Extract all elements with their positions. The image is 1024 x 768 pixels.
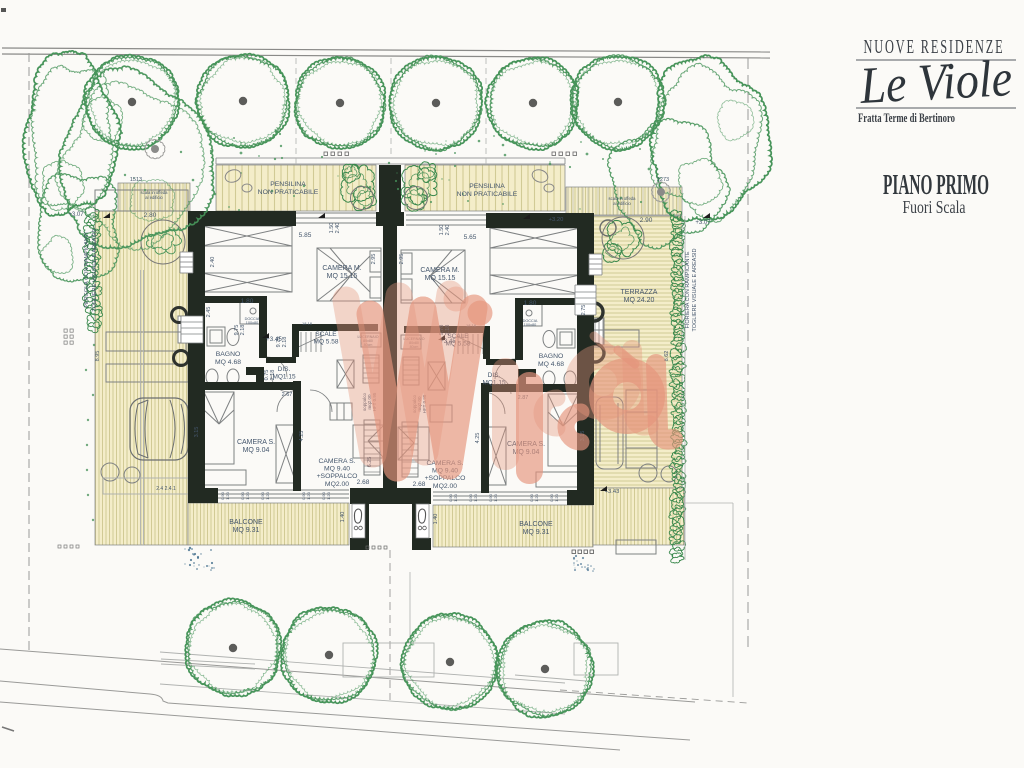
svg-text:4.25: 4.25 [475,433,481,444]
svg-text:2.67: 2.67 [282,392,293,398]
svg-text:2.4 2.4.1: 2.4 2.4.1 [156,486,176,492]
svg-text:MQ 5.58: MQ 5.58 [314,339,339,346]
svg-text:1273: 1273 [657,177,669,183]
svg-text:2.18: 2.18 [282,337,288,348]
svg-text:al edificio: al edificio [145,195,163,200]
svg-text:BALCONE: BALCONE [519,521,553,528]
svg-text:1.20: 1.20 [493,493,498,502]
svg-text:MQ2.00: MQ2.00 [325,481,349,488]
svg-text:FIORIERA CON RAMPICANTE: FIORIERA CON RAMPICANTE [685,251,691,328]
svg-text:1.20: 1.20 [554,493,559,502]
svg-text:MQ 9.04: MQ 9.04 [243,447,270,454]
svg-text:1.20: 1.20 [326,491,331,500]
svg-text:4.25: 4.25 [299,431,305,442]
svg-text:18 18: 18 18 [302,321,313,326]
svg-text:TOGLIERE VISUALE E AREASID: TOGLIERE VISUALE E AREASID [92,228,98,311]
svg-text:+3.07: +3.07 [695,220,711,226]
svg-text:2.95: 2.95 [371,254,377,265]
svg-text:+SOPPALCO: +SOPPALCO [317,473,358,480]
svg-text:BAGNO: BAGNO [216,351,241,358]
svg-text:1513: 1513 [130,177,142,183]
svg-text:1.20: 1.20 [245,491,250,500]
svg-text:100x80: 100x80 [524,323,536,327]
svg-text:PERGOLA CON RAMPICANTI: PERGOLA CON RAMPICANTI [84,232,90,308]
svg-text:Le Viole: Le Viole [858,50,1014,115]
svg-text:MQ 9.31: MQ 9.31 [523,529,550,536]
svg-text:BAGNO: BAGNO [539,353,564,360]
svg-text:5.65: 5.65 [464,234,477,241]
svg-text:2.68: 2.68 [413,481,426,488]
svg-text:NON PRATICABILE: NON PRATICABILE [258,189,319,196]
svg-text:TERRAZZA: TERRAZZA [621,289,658,296]
svg-text:TOGLIERE VISUALE E AREASID: TOGLIERE VISUALE E AREASID [692,248,698,331]
svg-text:2.40: 2.40 [335,223,341,234]
svg-text:Fratta Terme di Bertinoro: Fratta Terme di Bertinoro [858,111,955,125]
svg-text:MQ 24.20: MQ 24.20 [624,297,655,304]
svg-text:2.90: 2.90 [640,217,653,224]
svg-text:CAMERA M.: CAMERA M. [322,265,361,272]
svg-text:2.80: 2.80 [144,212,157,219]
svg-text:CAMERA S.: CAMERA S. [237,439,275,446]
svg-text:1.20: 1.20 [534,493,539,502]
svg-text:NON PRATICABILE: NON PRATICABILE [457,191,518,198]
svg-text:2.95: 2.95 [399,254,405,265]
svg-text:100x80: 100x80 [246,321,258,325]
svg-text:5.85: 5.85 [299,232,312,239]
svg-text:DIS.: DIS. [278,366,291,373]
svg-text:2.75: 2.75 [581,305,587,316]
svg-text:PENSILINA: PENSILINA [469,183,505,190]
svg-text:1.80: 1.80 [241,298,254,305]
svg-text:PENSILINA: PENSILINA [270,181,306,188]
svg-text:+3.07: +3.07 [68,212,84,218]
svg-text:2.18: 2.18 [270,370,276,381]
svg-text:2.40: 2.40 [445,225,451,236]
svg-text:1.40: 1.40 [340,512,346,523]
svg-text:2.68: 2.68 [357,479,370,486]
svg-text:1.40: 1.40 [433,514,439,525]
svg-text:2.45: 2.45 [206,307,212,318]
svg-text:MQ 9.40: MQ 9.40 [324,466,350,473]
svg-text:1.20: 1.20 [306,491,311,500]
svg-text:MQ 4.68: MQ 4.68 [215,359,241,366]
svg-text:MQ2.00: MQ2.00 [433,483,457,490]
svg-text:1.20: 1.20 [473,493,478,502]
svg-text:MQ 15.15: MQ 15.15 [327,273,358,280]
svg-text:CAMERA M.: CAMERA M. [420,267,459,274]
svg-text:Fuori Scala: Fuori Scala [903,197,966,217]
svg-text:MQ 4.68: MQ 4.68 [538,361,564,368]
svg-text:CAMERA S.: CAMERA S. [318,458,355,465]
svg-text:8.95: 8.95 [95,351,101,362]
svg-text:2.18: 2.18 [240,325,246,336]
svg-text:+3.20: +3.20 [549,217,564,223]
svg-text:1.20: 1.20 [225,491,230,500]
svg-text:1.20: 1.20 [265,491,270,500]
svg-text:1.20: 1.20 [453,493,458,502]
svg-text:MQ 9.31: MQ 9.31 [233,527,260,534]
svg-text:1.80: 1.80 [524,300,537,307]
svg-text:2.40: 2.40 [210,257,216,268]
svg-text:3.15: 3.15 [194,427,200,438]
svg-text:BALCONE: BALCONE [229,519,263,526]
svg-text:al edificio: al edificio [613,201,631,206]
svg-text:SCALE: SCALE [315,331,337,338]
